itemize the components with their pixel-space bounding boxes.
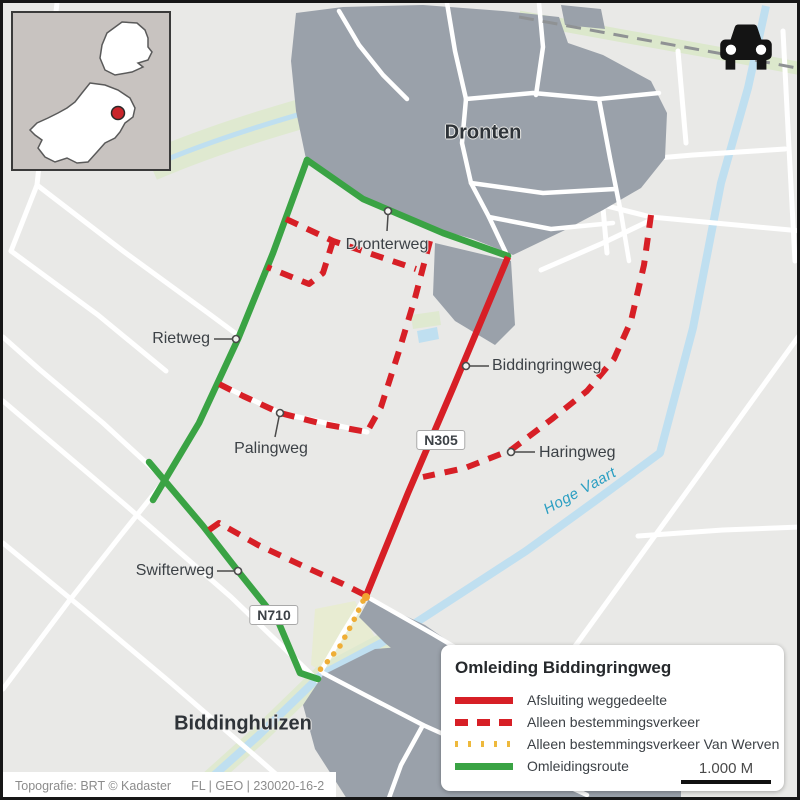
legend-item-bestemmingsverkeer: Alleen bestemmingsverkeer — [455, 711, 770, 733]
road-label-rietweg: Rietweg — [152, 330, 210, 348]
legend-item-van-werven: Alleen bestemmingsverkeer Van Werven — [455, 733, 770, 755]
detour-map: Dronten Biddinghuizen Dronterweg Rietweg… — [0, 0, 800, 800]
legend-swatch-dotted-yellow — [455, 741, 513, 747]
legend-label: Alleen bestemmingsverkeer Van Werven — [527, 736, 779, 752]
attribution-code: FL | GEO | 230020-16-2 — [191, 779, 324, 793]
car-icon — [717, 21, 775, 71]
attribution-source: Topografie: BRT © Kadaster — [15, 779, 171, 793]
inset-noordoostpolder-shape — [100, 22, 152, 75]
scale-bar — [681, 780, 771, 784]
town-label-biddinghuizen: Biddinghuizen — [174, 713, 312, 736]
inset-flevopolder-shape — [30, 83, 135, 163]
legend-swatch-solid-green — [455, 763, 513, 770]
road-label-dronterweg: Dronterweg — [346, 236, 429, 254]
road-label-biddingringweg: Biddingringweg — [492, 357, 601, 375]
location-inset-map — [11, 11, 171, 171]
road-label-palingweg: Palingweg — [234, 440, 308, 458]
attribution-bar: Topografie: BRT © Kadaster FL | GEO | 23… — [3, 772, 336, 800]
location-dot-icon — [112, 107, 125, 120]
scale-indicator: 1.000 M — [681, 760, 771, 784]
legend-label: Alleen bestemmingsverkeer — [527, 714, 700, 730]
scale-label: 1.000 M — [681, 760, 771, 777]
legend-swatch-solid-red — [455, 697, 513, 704]
junction-dot — [362, 593, 370, 601]
legend-label: Afsluiting weggedeelte — [527, 692, 667, 708]
road-label-haringweg: Haringweg — [539, 444, 615, 462]
road-shield-n710: N710 — [249, 605, 298, 625]
town-label-dronten: Dronten — [445, 122, 522, 145]
legend-label: Omleidingsroute — [527, 758, 629, 774]
road-shield-n305: N305 — [416, 430, 465, 450]
legend-swatch-dashed-red — [455, 719, 513, 726]
road-label-swifterweg: Swifterweg — [136, 562, 214, 580]
legend-title: Omleiding Biddingringweg — [455, 658, 770, 678]
inset-canvas — [13, 13, 169, 169]
legend-item-afsluiting: Afsluiting weggedeelte — [455, 689, 770, 711]
legend-panel: Omleiding Biddingringweg Afsluiting wegg… — [441, 645, 784, 791]
